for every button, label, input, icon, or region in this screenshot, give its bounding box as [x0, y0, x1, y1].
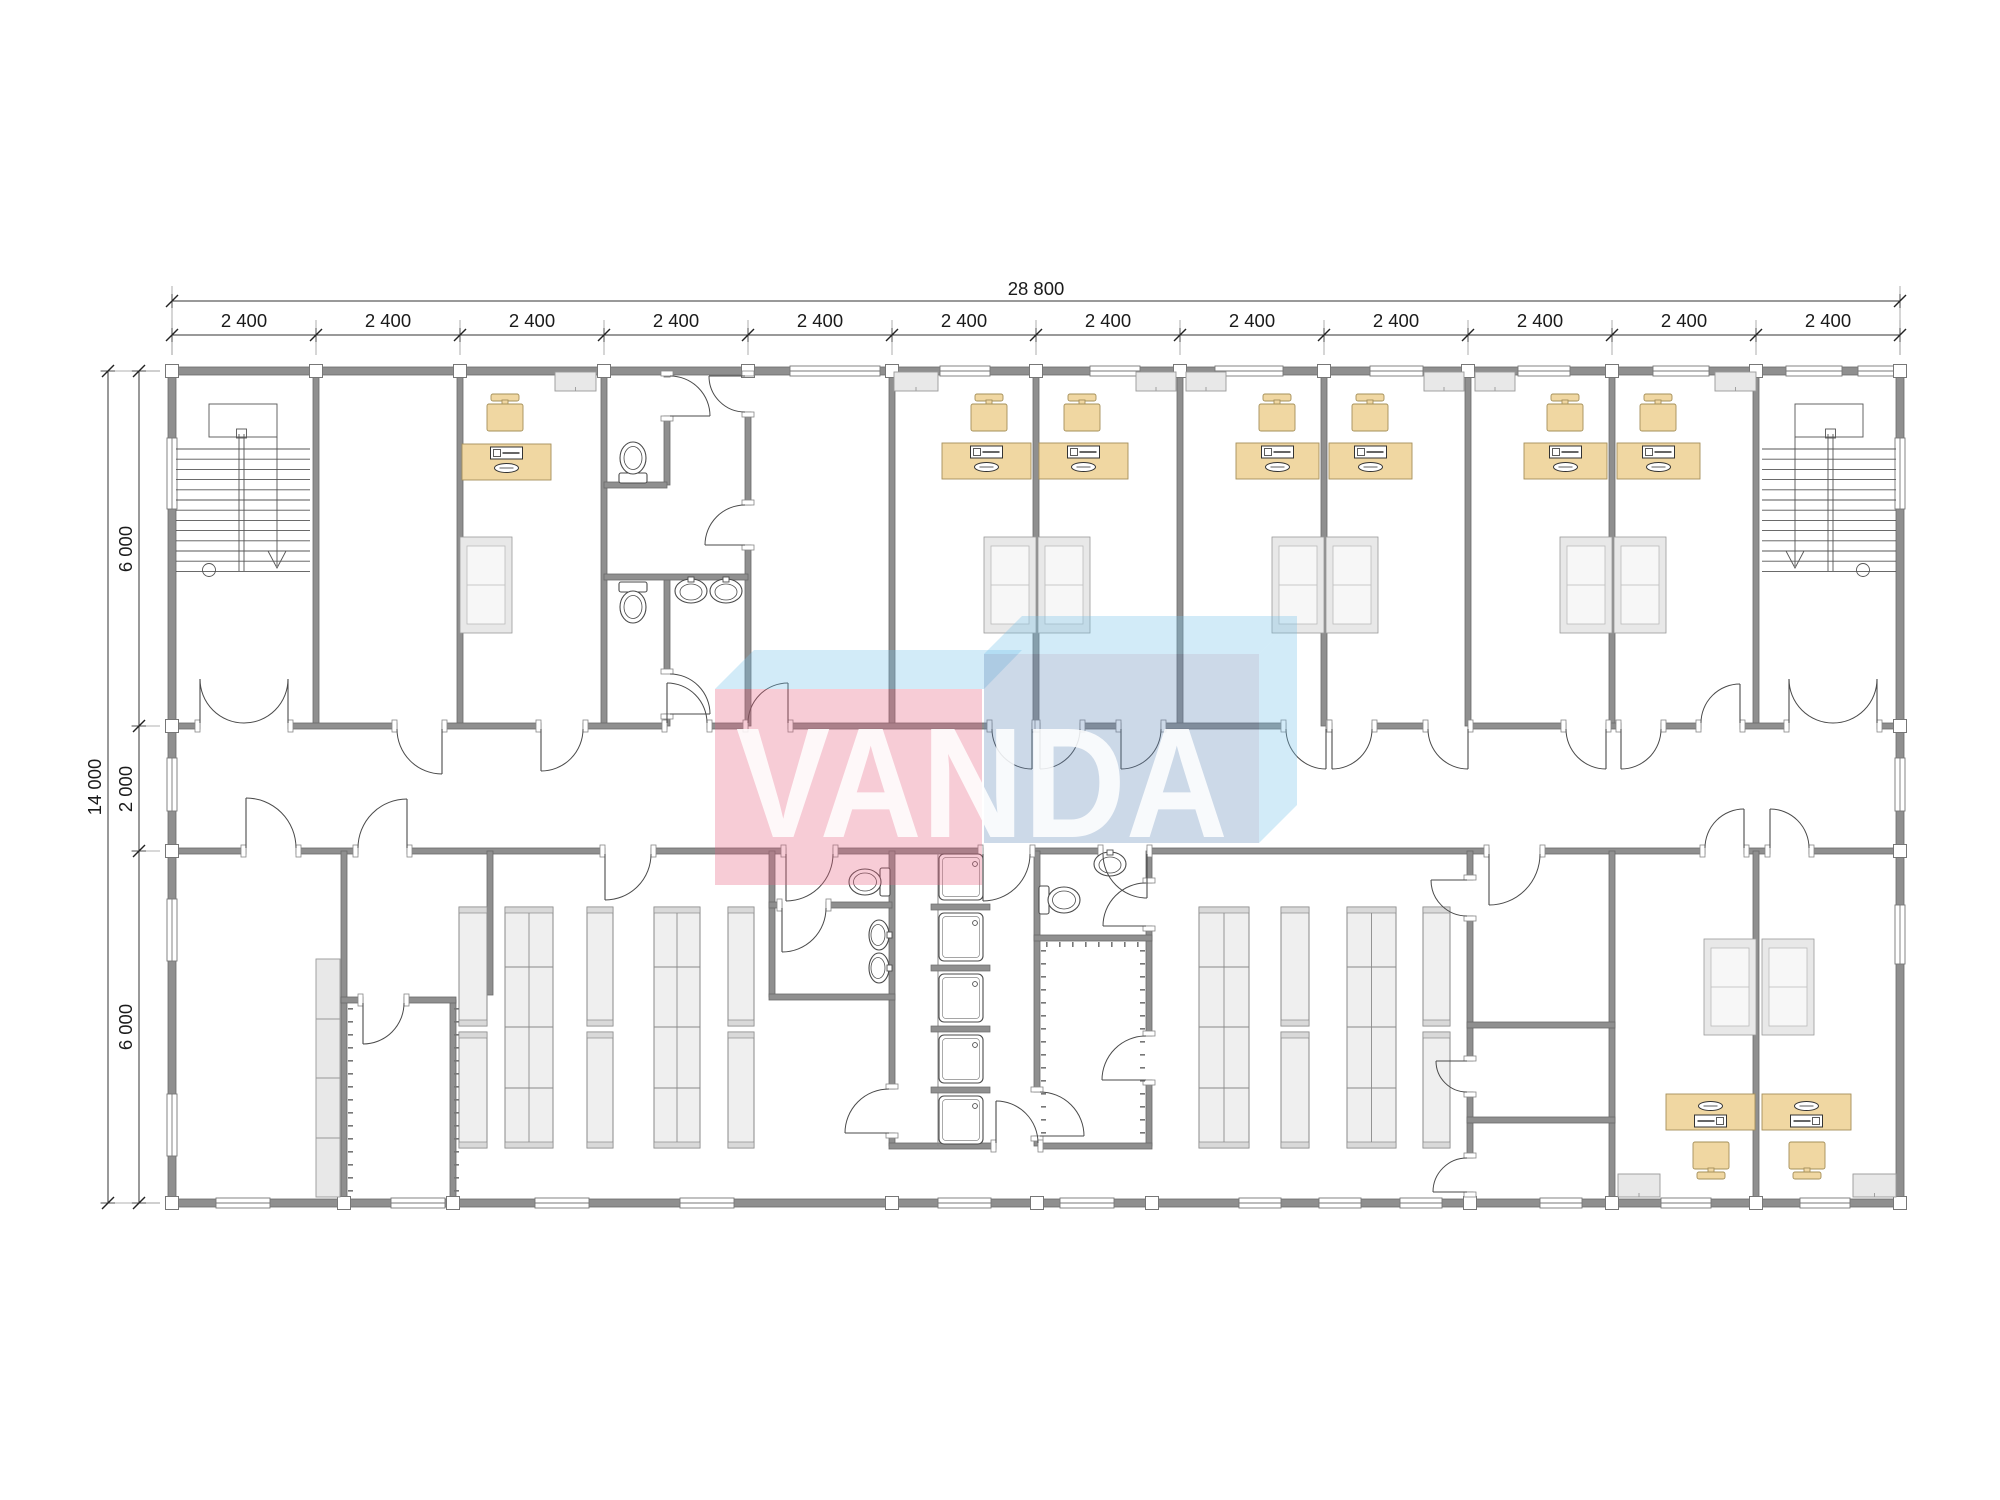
svg-text:2 400: 2 400 [509, 310, 555, 331]
svg-text:2 400: 2 400 [365, 310, 411, 331]
svg-text:VANDA: VANDA [736, 695, 1228, 871]
svg-text:2 400: 2 400 [221, 310, 267, 331]
svg-text:2 400: 2 400 [1229, 310, 1275, 331]
svg-text:6 000: 6 000 [115, 1004, 136, 1050]
svg-text:2 400: 2 400 [653, 310, 699, 331]
svg-text:2 400: 2 400 [797, 310, 843, 331]
svg-text:28 800: 28 800 [1008, 278, 1065, 299]
svg-text:2 400: 2 400 [1373, 310, 1419, 331]
svg-text:2 400: 2 400 [1085, 310, 1131, 331]
svg-text:2 400: 2 400 [1805, 310, 1851, 331]
svg-text:2 400: 2 400 [941, 310, 987, 331]
svg-text:14 000: 14 000 [84, 759, 105, 816]
svg-text:2 400: 2 400 [1661, 310, 1707, 331]
svg-text:6 000: 6 000 [115, 526, 136, 572]
svg-text:2 400: 2 400 [1517, 310, 1563, 331]
svg-text:2 000: 2 000 [115, 766, 136, 812]
